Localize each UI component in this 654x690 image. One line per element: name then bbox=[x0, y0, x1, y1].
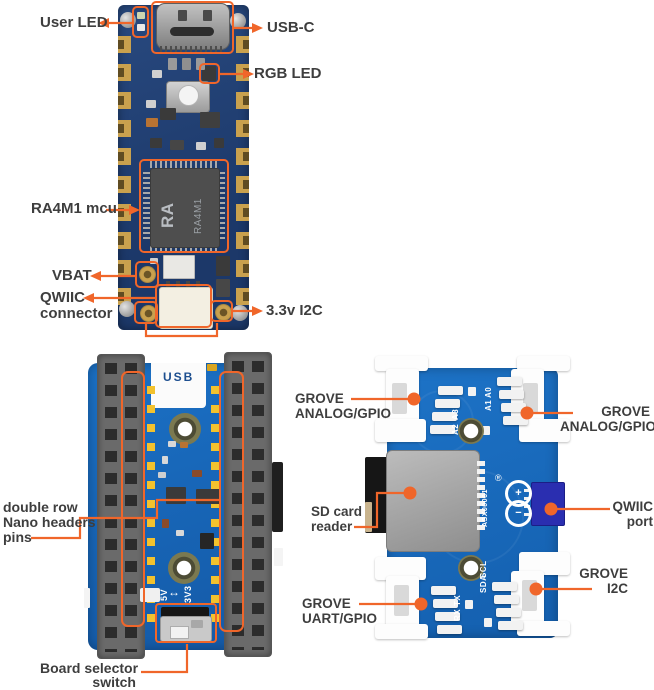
smd-component bbox=[176, 530, 184, 536]
i2c-pad-right-highlight bbox=[210, 300, 233, 322]
usb-text: USB bbox=[163, 370, 197, 384]
i2c-3v3-label: 3.3v I2C bbox=[266, 303, 323, 319]
smd-component bbox=[200, 112, 220, 128]
screw-hole-bottom bbox=[168, 552, 200, 584]
castellated-pads-right bbox=[236, 36, 249, 306]
smd-component bbox=[216, 256, 230, 276]
smd-component bbox=[146, 118, 158, 127]
silk-a0: A0 bbox=[484, 385, 493, 398]
sd-card-reader bbox=[386, 450, 480, 552]
smd-component bbox=[214, 138, 224, 148]
smd-component bbox=[170, 140, 184, 150]
smd-component bbox=[196, 142, 206, 150]
smd-component bbox=[163, 255, 195, 279]
silk-a2: A2 bbox=[451, 421, 460, 435]
mount-pad bbox=[232, 305, 248, 321]
smd-component bbox=[168, 58, 177, 70]
smd-component bbox=[192, 470, 202, 477]
grove-analog-right-label: GROVE ANALOG/GPIO bbox=[560, 404, 650, 434]
rgb-led-highlight bbox=[199, 63, 220, 84]
pad-column-right bbox=[211, 386, 219, 632]
silk-3v3: 3V3 bbox=[183, 581, 193, 603]
i2c-pad-left-highlight bbox=[134, 301, 158, 324]
part-number-text: ASX00061 bbox=[482, 477, 489, 527]
qwiic-highlight bbox=[155, 284, 212, 328]
silk-tx: TX bbox=[453, 593, 462, 606]
user-led-highlight bbox=[132, 6, 149, 38]
smd-component bbox=[168, 441, 176, 447]
usb-c-highlight bbox=[151, 1, 234, 54]
smd-component bbox=[182, 58, 191, 70]
mcu-label: RA4M1 mcu bbox=[31, 201, 117, 217]
silk-a1: A1 bbox=[484, 398, 493, 411]
smd-component bbox=[180, 442, 188, 448]
nano-headers-label: double row Nano headers pins bbox=[3, 500, 96, 545]
grove-uart-label: GROVE UART/GPIO bbox=[302, 596, 377, 626]
smd-component bbox=[207, 364, 217, 371]
qwiic-port-label: QWIIC port bbox=[565, 499, 653, 529]
side-connector bbox=[272, 462, 283, 532]
silk-a3: A3 bbox=[451, 406, 460, 420]
header-right-highlight bbox=[219, 371, 244, 632]
swap-arrow-icon: ↔ bbox=[168, 585, 180, 599]
smd-component bbox=[158, 472, 166, 478]
grove-analog-left-label: GROVE ANALOG/GPIO bbox=[295, 391, 391, 421]
screw-hole-top bbox=[458, 418, 484, 444]
usb-c-arrowhead bbox=[252, 23, 263, 33]
vbat-highlight bbox=[135, 261, 159, 288]
mount-pad bbox=[119, 301, 135, 317]
vbat-label: VBAT bbox=[52, 268, 92, 284]
smd-component bbox=[160, 108, 176, 120]
mcu-highlight bbox=[139, 159, 229, 253]
silk-sda: SDA bbox=[479, 579, 488, 593]
smd-component bbox=[152, 70, 162, 78]
usb-c-label: USB-C bbox=[267, 20, 315, 36]
annotated-board-figure: RA RA4M1 User LED USB-C RGB LED RA4M1 mc… bbox=[0, 0, 654, 690]
smd-component bbox=[166, 487, 186, 504]
sd-card-reader-label: SD card reader bbox=[311, 504, 362, 534]
smd-component bbox=[196, 489, 220, 504]
board-selector-switch-label: Board selector switch bbox=[40, 661, 136, 689]
qwiic-connector-label: QWIIC connector bbox=[40, 290, 113, 322]
side-tab bbox=[84, 588, 90, 608]
smd-component bbox=[146, 100, 156, 108]
sd-card-edge bbox=[365, 502, 372, 532]
header-left-highlight bbox=[121, 371, 145, 627]
arduino-logo-minus-ring: − bbox=[505, 500, 532, 527]
i2c-3v3-arrowhead bbox=[252, 306, 263, 316]
smd-component bbox=[162, 519, 169, 528]
smd-component bbox=[200, 533, 214, 549]
silk-rx: RX bbox=[453, 607, 462, 621]
user-led-label: User LED bbox=[40, 15, 108, 31]
side-tab bbox=[274, 548, 283, 566]
qwiic-port bbox=[531, 482, 565, 526]
grove-i2c-label: GROVE I2C bbox=[540, 566, 628, 596]
reset-button-cap bbox=[178, 85, 199, 106]
switch-highlight bbox=[155, 603, 217, 643]
registered-mark: ® bbox=[495, 473, 502, 483]
smd-component bbox=[162, 456, 168, 464]
castellated-pads-left bbox=[118, 36, 131, 306]
smd-component bbox=[216, 279, 230, 297]
rgb-led-label: RGB LED bbox=[254, 66, 322, 82]
smd-component bbox=[150, 138, 162, 148]
